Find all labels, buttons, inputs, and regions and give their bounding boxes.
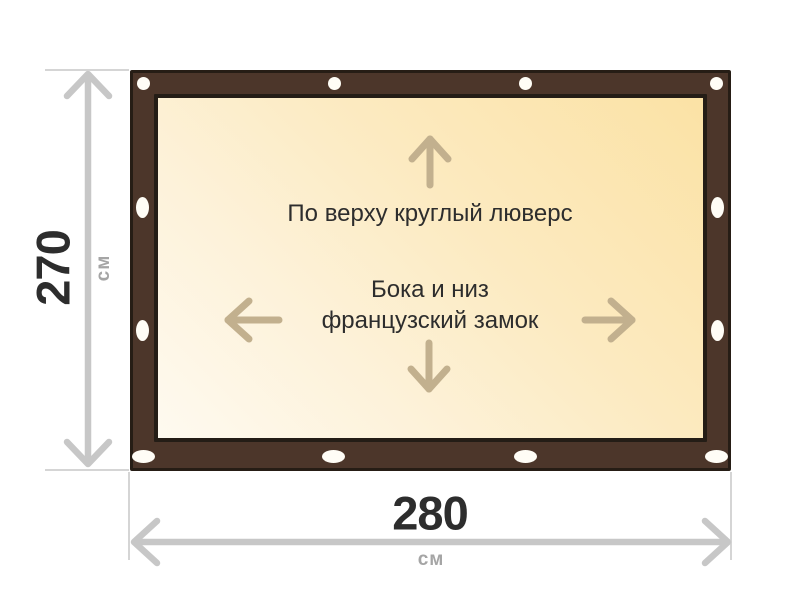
up-arrow-icon	[405, 131, 455, 191]
grommet-icon	[705, 450, 728, 463]
grommet-icon	[328, 77, 341, 90]
grommet-icon	[136, 197, 149, 218]
top-edge-note: По верху круглый люверс	[230, 198, 630, 229]
grommet-icon	[322, 450, 345, 463]
grommet-icon	[132, 450, 155, 463]
grommet-icon	[711, 320, 724, 341]
sides-bottom-note-line2: французский замок	[230, 305, 630, 336]
height-unit: см	[93, 255, 115, 282]
width-value: 280	[392, 486, 467, 541]
down-arrow-icon	[404, 337, 454, 397]
sides-bottom-note-line1: Бока и низ	[230, 274, 630, 305]
grommet-icon	[519, 77, 532, 90]
grommet-icon	[137, 77, 150, 90]
grommet-icon	[514, 450, 537, 463]
grommet-icon	[711, 197, 724, 218]
height-value: 270	[26, 230, 81, 305]
grommet-icon	[710, 77, 723, 90]
width-unit: см	[418, 549, 445, 571]
grommet-icon	[136, 320, 149, 341]
sides-bottom-note: Бока и низ французский замок	[230, 274, 630, 336]
tarp-size-diagram: По верху круглый люверс Бока и низ франц…	[0, 0, 800, 600]
